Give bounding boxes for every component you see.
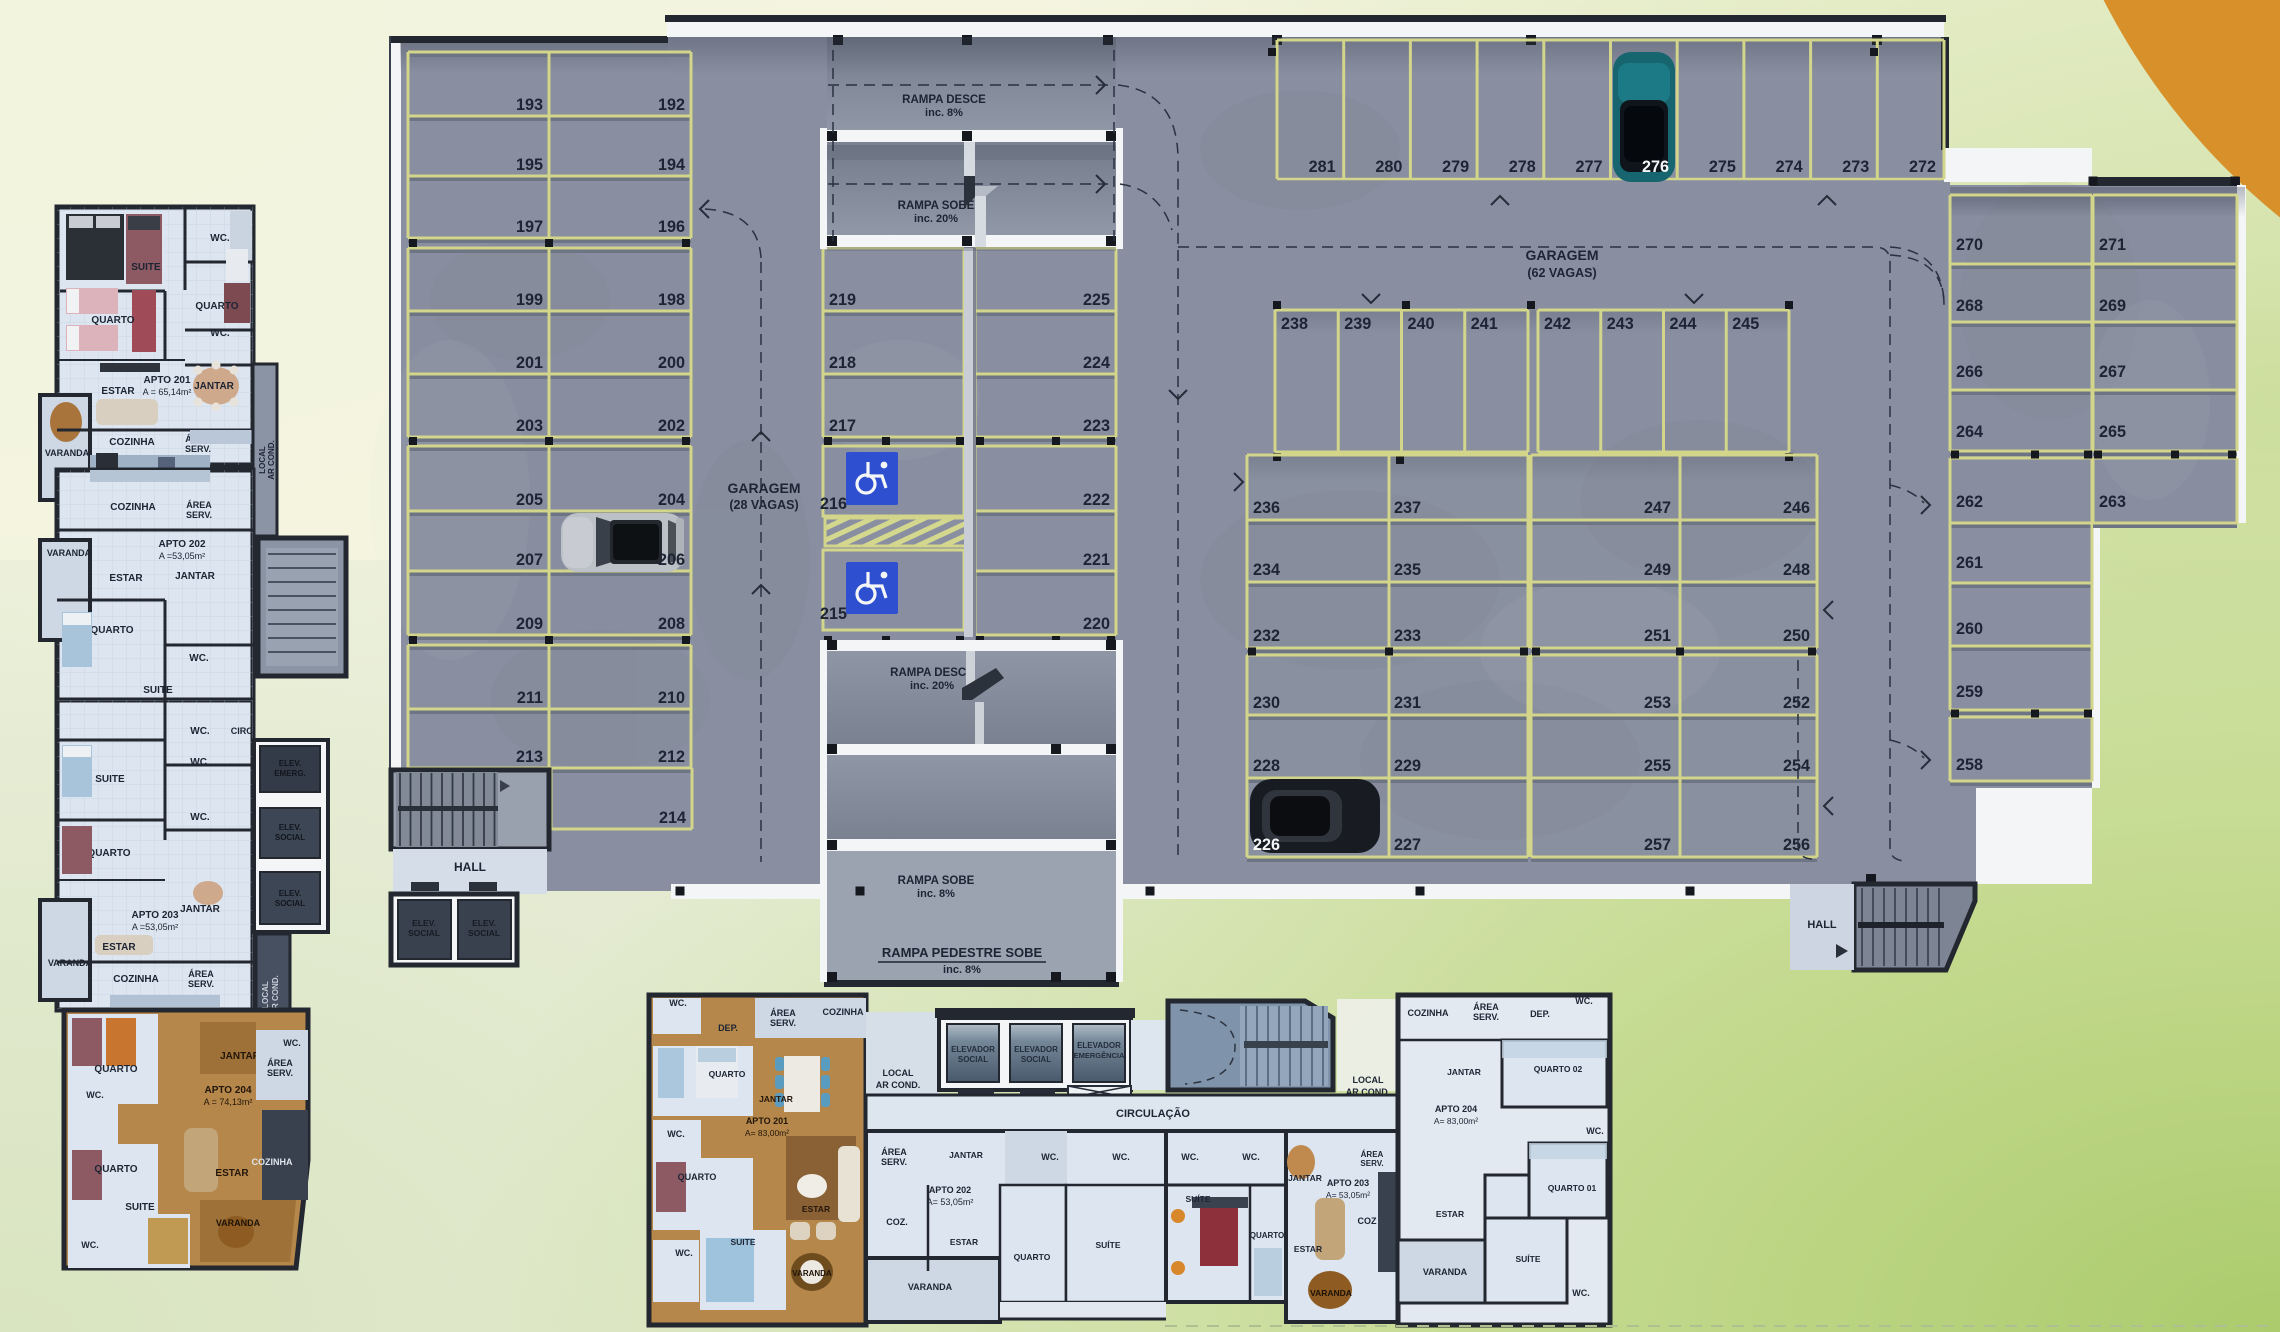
svg-text:SERV.: SERV. — [1360, 1159, 1383, 1168]
svg-text:218: 218 — [829, 354, 856, 372]
svg-text:RAMPA DESCE: RAMPA DESCE — [890, 667, 974, 679]
svg-text:inc. 8%: inc. 8% — [917, 888, 955, 900]
svg-text:WC.: WC. — [1041, 1152, 1059, 1162]
svg-text:241: 241 — [1471, 315, 1498, 333]
svg-text:274: 274 — [1776, 158, 1803, 176]
svg-text:ESTAR: ESTAR — [1436, 1209, 1464, 1219]
svg-text:265: 265 — [2099, 423, 2126, 441]
svg-text:QUARTO: QUARTO — [1014, 1252, 1051, 1262]
svg-text:226: 226 — [1253, 836, 1280, 854]
svg-text:202: 202 — [658, 417, 685, 435]
svg-text:252: 252 — [1783, 694, 1810, 712]
svg-text:VARANDA: VARANDA — [216, 1218, 261, 1228]
svg-text:268: 268 — [1956, 297, 1983, 315]
svg-text:275: 275 — [1709, 158, 1736, 176]
svg-text:273: 273 — [1842, 158, 1869, 176]
svg-text:199: 199 — [516, 291, 543, 309]
svg-text:COZINHA: COZINHA — [823, 1007, 864, 1017]
svg-text:WC.: WC. — [210, 328, 230, 339]
svg-text:219: 219 — [829, 291, 856, 309]
svg-text:204: 204 — [658, 491, 685, 509]
svg-text:JANTAR: JANTAR — [180, 904, 221, 915]
svg-text:234: 234 — [1253, 561, 1280, 579]
svg-text:256: 256 — [1783, 836, 1810, 854]
svg-text:276: 276 — [1642, 158, 1669, 176]
svg-text:227: 227 — [1394, 836, 1421, 854]
svg-text:CIRCULAÇÃO: CIRCULAÇÃO — [1116, 1107, 1190, 1120]
svg-text:SOCIAL: SOCIAL — [958, 1055, 988, 1064]
svg-text:231: 231 — [1394, 694, 1421, 712]
svg-text:212: 212 — [658, 748, 685, 766]
svg-text:COZ.: COZ. — [886, 1217, 908, 1227]
svg-text:196: 196 — [658, 218, 685, 236]
svg-text:AR COND.: AR COND. — [876, 1080, 921, 1090]
svg-text:QUARTO: QUARTO — [94, 1164, 137, 1175]
svg-text:APTO 203: APTO 203 — [131, 910, 178, 921]
svg-text:SUITE: SUITE — [143, 685, 173, 696]
svg-text:271: 271 — [2099, 236, 2126, 254]
svg-text:242: 242 — [1544, 315, 1571, 333]
svg-text:211: 211 — [517, 689, 543, 707]
svg-text:QUARTO: QUARTO — [709, 1069, 746, 1079]
svg-text:SOCIAL: SOCIAL — [275, 899, 305, 908]
svg-text:QUARTO: QUARTO — [678, 1172, 717, 1182]
svg-text:LOCAL: LOCAL — [258, 446, 267, 474]
svg-text:COZINHA: COZINHA — [1408, 1008, 1449, 1018]
svg-text:(62 VAGAS): (62 VAGAS) — [1527, 266, 1596, 280]
svg-text:inc. 20%: inc. 20% — [914, 213, 958, 225]
svg-text:VARANDA: VARANDA — [45, 448, 90, 458]
svg-text:230: 230 — [1253, 694, 1280, 712]
svg-text:inc. 8%: inc. 8% — [943, 964, 981, 976]
svg-text:ÁREA: ÁREA — [188, 969, 214, 979]
svg-text:HALL: HALL — [454, 860, 486, 874]
svg-text:203: 203 — [516, 417, 543, 435]
svg-text:JANTAR: JANTAR — [759, 1094, 793, 1104]
svg-text:SUITE: SUITE — [125, 1202, 155, 1213]
svg-text:ESTAR: ESTAR — [950, 1237, 978, 1247]
svg-text:213: 213 — [516, 748, 543, 766]
svg-text:WC.: WC. — [190, 812, 210, 823]
svg-text:CIRC.: CIRC. — [231, 726, 256, 736]
svg-text:SUITE: SUITE — [95, 774, 125, 785]
svg-text:QUARTO: QUARTO — [1250, 1231, 1285, 1240]
svg-text:QUARTO: QUARTO — [94, 1064, 137, 1075]
svg-text:A =53,05m²: A =53,05m² — [159, 551, 205, 561]
svg-text:251: 251 — [1644, 627, 1671, 645]
svg-text:215: 215 — [820, 605, 847, 623]
svg-text:VARANDA: VARANDA — [1310, 1288, 1352, 1298]
svg-text:216: 216 — [820, 495, 847, 513]
svg-text:243: 243 — [1607, 315, 1634, 333]
svg-text:WC.: WC. — [669, 998, 687, 1008]
svg-text:222: 222 — [1083, 491, 1110, 509]
svg-text:DEP.: DEP. — [1530, 1009, 1550, 1019]
svg-text:WC.: WC. — [1586, 1126, 1604, 1136]
svg-text:ELEV.: ELEV. — [279, 889, 301, 898]
svg-text:WC.: WC. — [1242, 1152, 1260, 1162]
svg-text:SOCIAL: SOCIAL — [468, 928, 500, 938]
svg-text:270: 270 — [1956, 236, 1983, 254]
svg-text:SOCIAL: SOCIAL — [275, 833, 305, 842]
svg-text:208: 208 — [658, 615, 685, 633]
svg-text:225: 225 — [1083, 291, 1110, 309]
svg-text:ESTAR: ESTAR — [102, 942, 136, 953]
svg-text:APTO 201: APTO 201 — [143, 375, 190, 386]
svg-text:WC.: WC. — [675, 1248, 693, 1258]
svg-text:235: 235 — [1394, 561, 1421, 579]
svg-text:220: 220 — [1083, 615, 1110, 633]
svg-text:ÁREA: ÁREA — [881, 1147, 907, 1157]
svg-text:A = 74,13m²: A = 74,13m² — [204, 1097, 253, 1107]
svg-text:APTO 203: APTO 203 — [1327, 1178, 1369, 1188]
svg-text:244: 244 — [1670, 315, 1697, 333]
svg-text:259: 259 — [1956, 683, 1983, 701]
svg-text:SERV.: SERV. — [186, 510, 212, 520]
svg-text:WC.: WC. — [1572, 1288, 1590, 1298]
svg-text:WC.: WC. — [86, 1090, 104, 1100]
svg-text:QUARTO: QUARTO — [87, 848, 130, 859]
svg-text:217: 217 — [829, 417, 856, 435]
svg-text:JANTAR: JANTAR — [194, 381, 235, 392]
svg-text:253: 253 — [1644, 694, 1671, 712]
svg-text:QUARTO: QUARTO — [195, 301, 238, 312]
svg-text:280: 280 — [1375, 158, 1402, 176]
svg-text:264: 264 — [1956, 423, 1983, 441]
svg-text:263: 263 — [2099, 493, 2126, 511]
svg-text:ELEV.: ELEV. — [279, 823, 301, 832]
svg-text:QUARTO: QUARTO — [90, 625, 133, 636]
svg-text:262: 262 — [1956, 493, 1983, 511]
svg-text:A= 83,00m²: A= 83,00m² — [745, 1128, 789, 1138]
svg-text:QUARTO 02: QUARTO 02 — [1534, 1064, 1583, 1074]
svg-text:ESTAR: ESTAR — [802, 1204, 830, 1214]
svg-text:198: 198 — [658, 291, 685, 309]
svg-text:VARANDA: VARANDA — [47, 548, 92, 558]
svg-text:EMERGÊNCIA: EMERGÊNCIA — [1074, 1051, 1125, 1060]
svg-text:AR COND.: AR COND. — [267, 440, 276, 480]
svg-text:281: 281 — [1309, 158, 1336, 176]
svg-text:197: 197 — [516, 218, 543, 236]
svg-text:269: 269 — [2099, 297, 2126, 315]
svg-text:201: 201 — [516, 354, 543, 372]
svg-text:232: 232 — [1253, 627, 1280, 645]
svg-text:SUÍTE: SUÍTE — [1185, 1194, 1210, 1204]
svg-text:inc. 20%: inc. 20% — [910, 680, 954, 692]
svg-text:GARAGEM: GARAGEM — [727, 480, 800, 496]
svg-text:254: 254 — [1783, 757, 1810, 775]
svg-text:COZ: COZ — [1358, 1216, 1378, 1226]
svg-text:JANTAR: JANTAR — [1288, 1173, 1322, 1183]
svg-text:RAMPA PEDESTRE SOBE: RAMPA PEDESTRE SOBE — [882, 945, 1043, 960]
svg-text:246: 246 — [1783, 499, 1810, 517]
svg-text:LOCAL: LOCAL — [1353, 1075, 1384, 1085]
svg-text:250: 250 — [1783, 627, 1810, 645]
svg-text:228: 228 — [1253, 757, 1280, 775]
svg-text:SUÍTE: SUÍTE — [1095, 1240, 1120, 1250]
svg-text:DEP.: DEP. — [718, 1023, 738, 1033]
svg-text:APTO 204: APTO 204 — [204, 1085, 251, 1096]
svg-text:229: 229 — [1394, 757, 1421, 775]
svg-text:ÁREA: ÁREA — [1473, 1002, 1499, 1012]
svg-text:WC.: WC. — [1181, 1152, 1199, 1162]
svg-text:249: 249 — [1644, 561, 1671, 579]
svg-text:ELEVADOR: ELEVADOR — [951, 1045, 995, 1054]
svg-text:240: 240 — [1408, 315, 1435, 333]
svg-text:EMERG.: EMERG. — [274, 769, 306, 778]
svg-text:272: 272 — [1909, 158, 1936, 176]
svg-text:ELEV.: ELEV. — [279, 759, 301, 768]
svg-text:237: 237 — [1394, 499, 1421, 517]
svg-text:SERV.: SERV. — [881, 1157, 907, 1167]
svg-text:(28 VAGAS): (28 VAGAS) — [729, 498, 798, 512]
svg-text:223: 223 — [1083, 417, 1110, 435]
svg-text:ESTAR: ESTAR — [1294, 1244, 1322, 1254]
svg-text:194: 194 — [658, 156, 685, 174]
svg-text:236: 236 — [1253, 499, 1280, 517]
svg-text:278: 278 — [1509, 158, 1536, 176]
svg-text:224: 224 — [1083, 354, 1110, 372]
svg-text:JANTAR: JANTAR — [220, 1051, 261, 1062]
svg-text:ELEV.: ELEV. — [412, 918, 436, 928]
svg-text:SERV.: SERV. — [1473, 1012, 1499, 1022]
svg-text:209: 209 — [516, 615, 543, 633]
svg-text:RAMPA DESCE: RAMPA DESCE — [902, 94, 986, 106]
svg-text:APTO 201: APTO 201 — [746, 1116, 788, 1126]
svg-text:ELEVADOR: ELEVADOR — [1014, 1045, 1058, 1054]
svg-text:245: 245 — [1732, 315, 1759, 333]
svg-text:COZINHA: COZINHA — [110, 502, 156, 513]
svg-text:A =53,05m²: A =53,05m² — [132, 922, 178, 932]
svg-text:207: 207 — [516, 551, 543, 569]
svg-text:SUÍTE: SUÍTE — [1515, 1254, 1540, 1264]
svg-text:RAMPA SOBE: RAMPA SOBE — [898, 875, 975, 887]
svg-text:SERV.: SERV. — [185, 444, 211, 454]
svg-text:192: 192 — [658, 96, 685, 114]
svg-text:SOCIAL: SOCIAL — [408, 928, 440, 938]
svg-text:COZINHA: COZINHA — [252, 1157, 293, 1167]
svg-text:QUARTO 01: QUARTO 01 — [1548, 1183, 1597, 1193]
svg-text:LOCAL: LOCAL — [883, 1068, 914, 1078]
svg-text:193: 193 — [516, 96, 543, 114]
svg-text:257: 257 — [1644, 836, 1671, 854]
svg-text:ÁREA: ÁREA — [1361, 1150, 1384, 1159]
svg-text:WC.: WC. — [667, 1129, 685, 1139]
svg-text:COZINHA: COZINHA — [109, 437, 155, 448]
svg-text:260: 260 — [1956, 620, 1983, 638]
svg-text:SERV.: SERV. — [267, 1068, 293, 1078]
svg-text:RAMPA SOBE: RAMPA SOBE — [898, 200, 975, 212]
svg-text:WC.: WC. — [190, 726, 210, 737]
svg-text:JANTAR: JANTAR — [175, 571, 216, 582]
svg-text:VARANDA: VARANDA — [1423, 1267, 1468, 1277]
svg-text:214: 214 — [659, 809, 686, 827]
svg-text:ÁREA: ÁREA — [267, 1058, 293, 1068]
svg-text:SUITE: SUITE — [131, 262, 161, 273]
svg-text:A= 53,05m²: A= 53,05m² — [927, 1197, 974, 1207]
svg-text:JANTAR: JANTAR — [1447, 1067, 1481, 1077]
svg-text:ESTAR: ESTAR — [101, 386, 135, 397]
svg-text:SERV.: SERV. — [770, 1018, 796, 1028]
svg-text:SERV.: SERV. — [188, 979, 214, 989]
svg-text:WC.: WC. — [189, 653, 209, 664]
svg-text:205: 205 — [516, 491, 543, 509]
svg-text:LOCAL: LOCAL — [261, 981, 270, 1009]
svg-text:195: 195 — [516, 156, 543, 174]
svg-text:GARAGEM: GARAGEM — [1525, 247, 1598, 263]
svg-text:WC.: WC. — [1575, 996, 1593, 1006]
svg-text:WC.: WC. — [1112, 1152, 1130, 1162]
svg-text:221: 221 — [1083, 551, 1110, 569]
svg-text:QUARTO: QUARTO — [91, 315, 134, 326]
svg-text:SUITE: SUITE — [730, 1237, 755, 1247]
svg-text:WC.: WC. — [81, 1240, 99, 1250]
svg-text:COZINHA: COZINHA — [113, 974, 159, 985]
svg-text:238: 238 — [1281, 315, 1308, 333]
svg-text:HALL: HALL — [1807, 919, 1837, 931]
svg-text:210: 210 — [658, 689, 685, 707]
svg-text:A = 65,14m²: A = 65,14m² — [143, 387, 192, 397]
svg-text:ÁREA: ÁREA — [186, 500, 212, 510]
svg-text:ELEVADOR: ELEVADOR — [1077, 1041, 1121, 1050]
svg-text:VARANDA: VARANDA — [908, 1282, 953, 1292]
svg-text:279: 279 — [1442, 158, 1469, 176]
svg-text:248: 248 — [1783, 561, 1810, 579]
svg-text:258: 258 — [1956, 756, 1983, 774]
svg-text:SOCIAL: SOCIAL — [1021, 1055, 1051, 1064]
svg-text:267: 267 — [2099, 363, 2126, 381]
svg-text:VARANDA: VARANDA — [792, 1269, 832, 1278]
svg-text:JANTAR: JANTAR — [949, 1150, 983, 1160]
svg-text:200: 200 — [658, 354, 685, 372]
svg-text:WC.: WC. — [190, 757, 210, 768]
svg-text:261: 261 — [1956, 554, 1983, 572]
svg-text:239: 239 — [1344, 315, 1371, 333]
svg-text:233: 233 — [1394, 627, 1421, 645]
svg-text:247: 247 — [1644, 499, 1671, 517]
svg-text:APTO 204: APTO 204 — [1435, 1104, 1477, 1114]
svg-text:206: 206 — [658, 551, 685, 569]
svg-text:inc. 8%: inc. 8% — [925, 107, 963, 119]
svg-text:WC.: WC. — [210, 233, 230, 244]
svg-text:A= 83,00m²: A= 83,00m² — [1434, 1116, 1478, 1126]
svg-text:266: 266 — [1956, 363, 1983, 381]
svg-text:WC.: WC. — [283, 1038, 301, 1048]
svg-text:ELEV.: ELEV. — [472, 918, 496, 928]
svg-text:255: 255 — [1644, 757, 1671, 775]
svg-text:ESTAR: ESTAR — [109, 573, 143, 584]
svg-text:APTO 202: APTO 202 — [158, 539, 205, 550]
svg-text:ESTAR: ESTAR — [215, 1168, 249, 1179]
svg-text:APTO 202: APTO 202 — [929, 1185, 971, 1195]
svg-text:ÁREA: ÁREA — [770, 1008, 796, 1018]
svg-text:277: 277 — [1575, 158, 1602, 176]
